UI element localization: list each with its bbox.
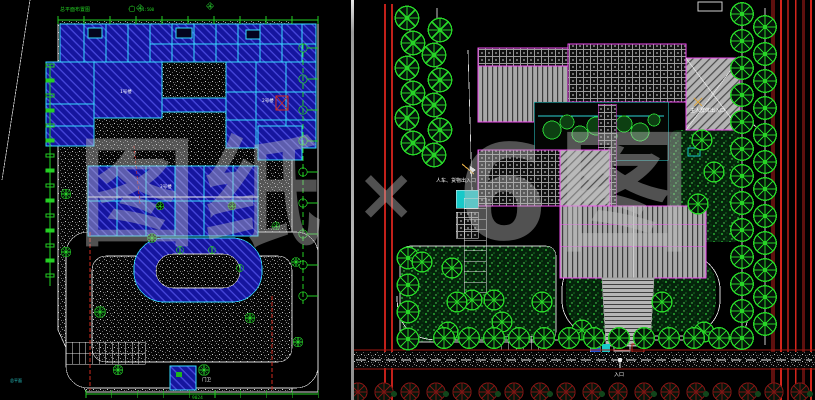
south-entry-label: 入口	[614, 372, 624, 378]
right-plan-canvas: 人车、货物出入口 主人群体出入口 入口	[352, 0, 815, 400]
gatehouse-building	[170, 366, 196, 390]
street-strip	[352, 350, 815, 369]
cad-screenshot-stage: 总平面布置图 1:500 总平面 1号楼 2号楼 3号楼 门卫 9024	[0, 0, 815, 400]
south-roof	[560, 206, 706, 278]
building-2-label: 2号楼	[262, 97, 274, 104]
left-plan-canvas: 总平面布置图 1:500 总平面 1号楼 2号楼 3号楼 门卫 9024	[0, 0, 352, 400]
corner-note: 总平面	[10, 377, 22, 383]
gatehouse-label: 门卫	[202, 376, 211, 383]
scale-note: 1:500	[142, 7, 155, 12]
building-1-label: 1号楼	[120, 88, 132, 95]
east-entry-label: 主人群体出入口	[690, 107, 725, 114]
west-entry-label: 人车、货物出入口	[436, 177, 476, 184]
bottom-dimension: 9024	[192, 395, 203, 400]
panel-divider	[351, 0, 354, 400]
plan-caption: 总平面布置图	[60, 6, 90, 13]
building-3-label: 3号楼	[160, 183, 172, 190]
